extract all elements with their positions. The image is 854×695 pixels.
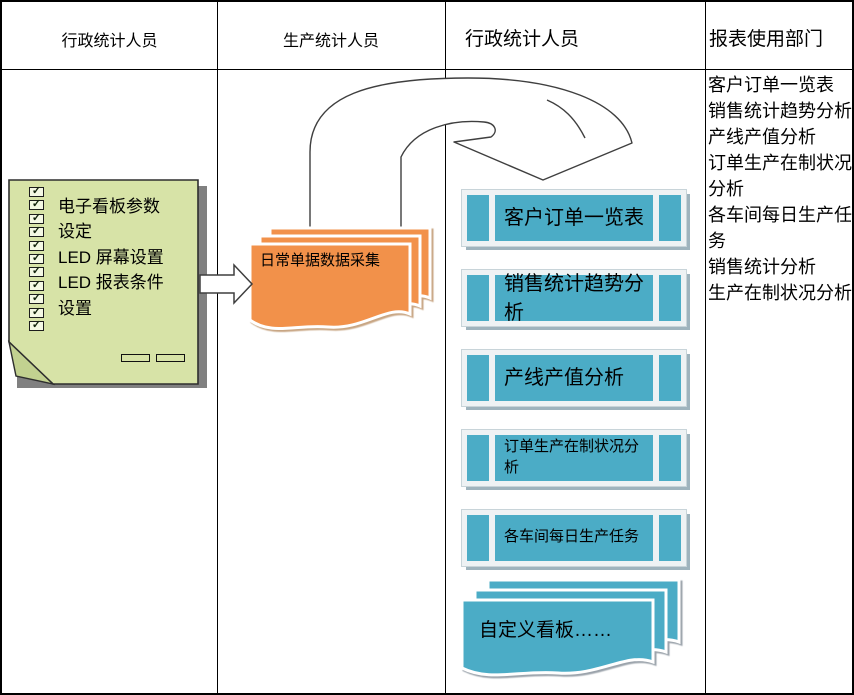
report-name: 订单生产在制状况分析 xyxy=(708,150,854,202)
note-text-line: 电子看板参数 xyxy=(58,194,186,219)
report-box-right-panel xyxy=(659,275,681,321)
note-slot-left xyxy=(121,354,150,362)
checkbox-icon: ✓ xyxy=(29,214,44,224)
lane-header-report-users: 报表使用部门 xyxy=(709,24,823,51)
header-divider xyxy=(2,69,852,70)
report-box-label: 各车间每日生产任务 xyxy=(495,515,653,561)
report-box-left-panel xyxy=(467,355,489,401)
right-block-arrow-shape xyxy=(200,265,252,303)
report-name: 生产在制状况分析 xyxy=(708,280,854,306)
report-box-label: 销售统计趋势分析 xyxy=(495,275,653,321)
lane-header-admin-1: 行政统计人员 xyxy=(2,27,217,51)
checkbox-icon: ✓ xyxy=(29,321,44,331)
report-box: 销售统计趋势分析 xyxy=(461,269,687,327)
custom-board-doc-label: 自定义看板…… xyxy=(479,615,612,642)
report-box: 各车间每日生产任务 xyxy=(461,509,687,567)
report-box: 产线产值分析 xyxy=(461,349,687,407)
report-name: 各车间每日生产任务 xyxy=(708,202,854,254)
report-box-right-panel xyxy=(659,515,681,561)
note-text-line: LED 报表条件 xyxy=(58,270,186,295)
note-slot-right xyxy=(156,354,185,362)
lane-divider-1 xyxy=(217,2,218,693)
report-box-right-panel xyxy=(659,435,681,481)
report-box-label: 客户订单一览表 xyxy=(495,195,653,241)
kanban-settings-note: ✓ ✓ ✓ ✓ ✓ ✓ ✓ ✓ ✓ ✓ ✓ xyxy=(7,178,217,394)
report-box-right-panel xyxy=(659,355,681,401)
checkbox-icon: ✓ xyxy=(29,308,44,318)
report-name-list: 客户订单一览表 销售统计趋势分析 产线产值分析 订单生产在制状况分析 各车间每日… xyxy=(708,72,854,306)
checkbox-icon: ✓ xyxy=(29,267,44,277)
report-box-left-panel xyxy=(467,275,489,321)
swimlane-diagram: 行政统计人员 生产统计人员 行政统计人员 报表使用部门 客户订单一览表 销售统计… xyxy=(0,0,854,695)
lane-header-admin-2: 行政统计人员 xyxy=(465,24,579,51)
note-text-line: 设定 xyxy=(58,219,186,244)
daily-data-doc-label: 日常单据数据采集 xyxy=(260,249,380,270)
checkbox-icon: ✓ xyxy=(29,254,44,264)
note-text-line: 设置 xyxy=(58,296,186,321)
checkbox-icon: ✓ xyxy=(29,227,44,237)
report-box-right-panel xyxy=(659,195,681,241)
lane-divider-3 xyxy=(705,2,706,693)
report-box-label: 订单生产在制状况分析 xyxy=(495,435,653,481)
checkbox-icon: ✓ xyxy=(29,187,44,197)
report-box: 客户订单一览表 xyxy=(461,189,687,247)
note-text-line: LED 屏幕设置 xyxy=(58,245,186,270)
note-checkbox-column: ✓ ✓ ✓ ✓ ✓ ✓ ✓ ✓ ✓ ✓ ✓ xyxy=(29,187,44,334)
report-box-left-panel xyxy=(467,195,489,241)
checkbox-icon: ✓ xyxy=(29,200,44,210)
report-box-label: 产线产值分析 xyxy=(495,355,653,401)
report-box-list: 客户订单一览表 销售统计趋势分析 产线产值分析 订单生产在制状况分析 xyxy=(461,189,687,589)
lane-header-production: 生产统计人员 xyxy=(217,27,445,51)
checkbox-icon: ✓ xyxy=(29,281,44,291)
daily-data-doc-stack xyxy=(246,220,446,335)
note-text-lines: 电子看板参数 设定 LED 屏幕设置 LED 报表条件 设置 xyxy=(58,194,186,321)
report-box: 订单生产在制状况分析 xyxy=(461,429,687,487)
report-name: 销售统计趋势分析 xyxy=(708,98,854,124)
report-name: 产线产值分析 xyxy=(708,124,854,150)
report-box-left-panel xyxy=(467,435,489,481)
report-name: 销售统计分析 xyxy=(708,254,854,280)
checkbox-icon: ✓ xyxy=(29,294,44,304)
checkbox-icon: ✓ xyxy=(29,241,44,251)
report-name: 客户订单一览表 xyxy=(708,72,854,98)
right-block-arrow xyxy=(198,260,256,308)
report-box-left-panel xyxy=(467,515,489,561)
